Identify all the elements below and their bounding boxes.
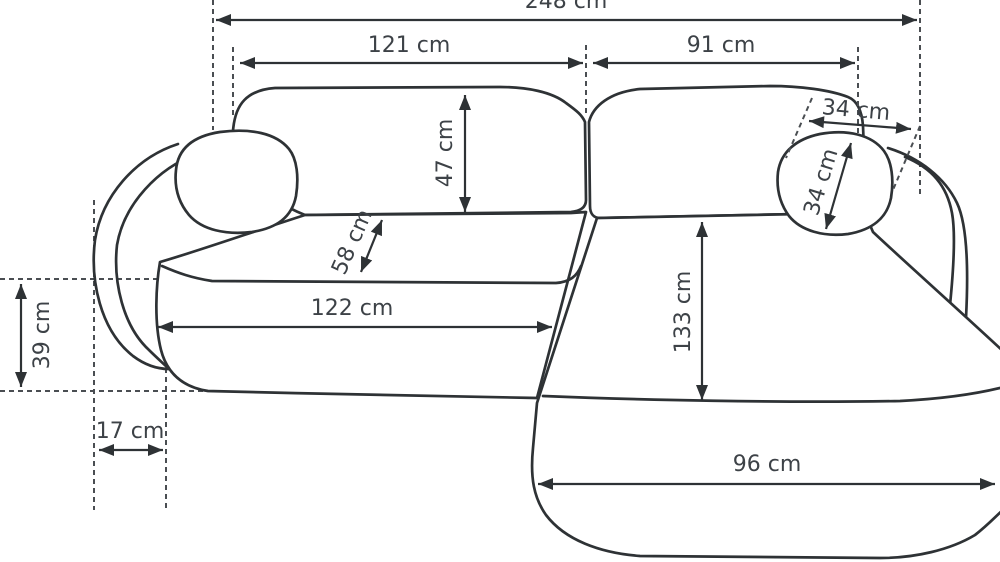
armrest-width-label: 17 cm [96,419,165,444]
right-headrest-pillow [778,132,893,234]
chaise-section-width-label: 91 cm [687,33,756,58]
armrest-side-depth-label: 39 cm [30,301,55,370]
left-seat-width-label: 121 cm [368,33,451,58]
seat-cushion-width-label: 122 cm [311,296,394,321]
chaise-cushion-width-label: 96 cm [733,452,802,477]
overall-width-label: 248 cm [525,0,608,14]
sofa-outline [94,86,1000,558]
left-headrest-pillow [176,131,298,233]
chaise-length-label: 133 cm [671,271,696,354]
sofa-dimension-diagram: 248 cm 121 cm 91 cm 47 cm 58 cm 34 cm 34… [0,0,1000,562]
backrest-depth-label: 47 cm [433,119,458,188]
chaise-section [532,213,1000,558]
diagram-canvas: 248 cm 121 cm 91 cm 47 cm 58 cm 34 cm 34… [0,0,1000,562]
